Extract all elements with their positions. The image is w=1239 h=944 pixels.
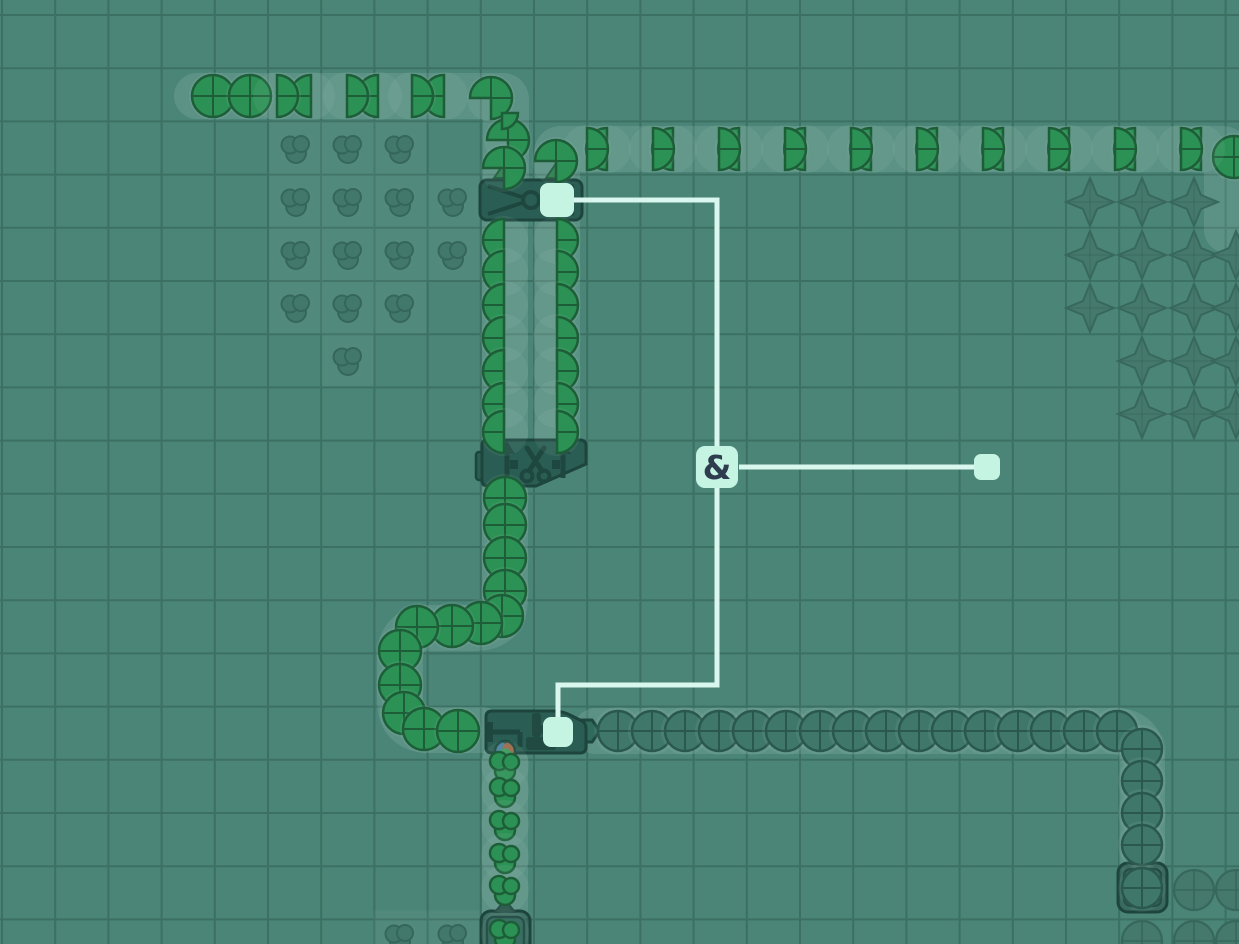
- wire-node-balancer[interactable]: [540, 183, 574, 217]
- game-viewport: &: [0, 0, 1239, 944]
- paint-resource: [386, 925, 414, 944]
- wire-node-painter[interactable]: [543, 717, 573, 747]
- and-gate[interactable]: &: [696, 446, 738, 488]
- circle-resource: [1174, 870, 1214, 910]
- factory-wires-scene[interactable]: &: [0, 0, 1239, 944]
- paint-resource: [439, 925, 467, 944]
- wire-node-free[interactable]: [974, 454, 1000, 480]
- and-gate-label: &: [703, 448, 732, 487]
